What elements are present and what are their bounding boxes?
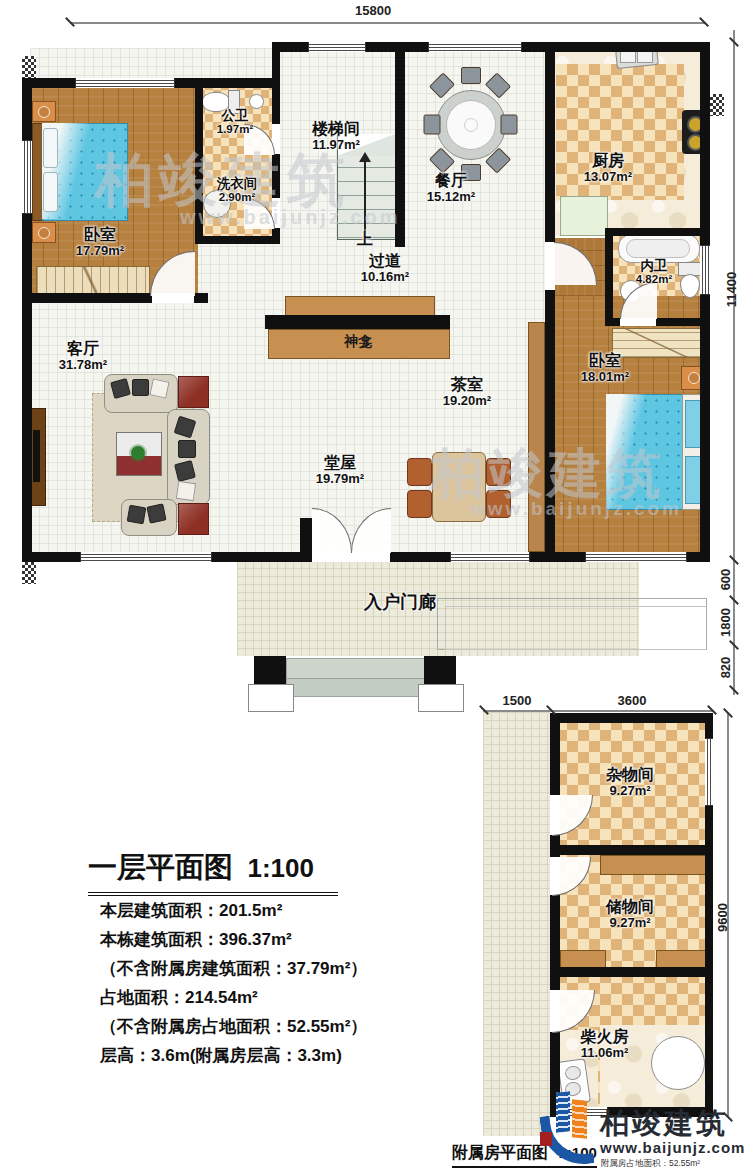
room-label-living: 客厅 31.78m² <box>28 340 138 372</box>
room-label-dining: 餐厅 15.12m² <box>403 172 499 204</box>
dining-chair <box>424 115 441 135</box>
stat-line: 本层建筑面积：201.5m² <box>100 896 460 925</box>
wall <box>605 228 613 320</box>
annex-caption-label: 附属房平面图 <box>452 1144 548 1161</box>
dim-annex-9600: 9600 <box>715 896 730 940</box>
bed1-pillow <box>43 128 58 168</box>
wall-annex <box>550 967 713 977</box>
stat-line: 层高：3.6m(附属房层高：3.3m) <box>100 1041 460 1070</box>
bathtub-inner <box>626 239 690 258</box>
dim-line-top <box>70 22 705 24</box>
title-block-header: 一层平面图 1:100 <box>88 848 338 896</box>
kitchen-sink-basin <box>620 51 636 63</box>
plan-scale: 1:100 <box>247 853 314 883</box>
dim-right-1800: 1800 <box>718 603 733 643</box>
floor-annex-walkway <box>483 712 550 1136</box>
wall-annex <box>550 713 713 723</box>
room-label-tea-room: 茶室 19.20m² <box>412 376 522 408</box>
porch-pillar <box>424 656 456 684</box>
sofa-pillow <box>178 440 196 458</box>
porch-pillar-base <box>248 684 294 712</box>
dim-line-right <box>733 30 735 695</box>
sofa-cushion <box>176 481 196 501</box>
dining-chair <box>501 115 518 135</box>
dim-right-total: 11400 <box>724 267 739 313</box>
wall <box>300 518 312 562</box>
stat-line: （不含附属房建筑面积：37.79m²） <box>100 954 460 983</box>
wall-shrine <box>265 315 450 329</box>
dim-annex-1500: 1500 <box>485 693 549 708</box>
kitchen-sink-basin <box>637 51 653 63</box>
wall <box>700 42 710 562</box>
porch-pillar <box>254 656 286 684</box>
window <box>700 245 710 295</box>
dim-top-value: 15800 <box>355 3 391 18</box>
bed2-blanket <box>606 394 666 508</box>
tv-icon <box>33 430 40 482</box>
window <box>450 552 530 562</box>
hatch-mark <box>22 562 36 584</box>
dim-annex-3600: 3600 <box>572 693 692 708</box>
window <box>428 42 522 52</box>
stairs <box>337 152 397 240</box>
sofa-cushion <box>149 378 169 398</box>
annex-footprint-note: 附属房占地面积：52.55m² <box>601 1158 700 1170</box>
logo-brand-text: 柏竣建筑 <box>600 1104 728 1144</box>
floor-plan-canvas: 柏竣建筑 www.baijunjz.com 柏竣建筑 www.baijunjz.… <box>0 0 750 1176</box>
hatch-mark <box>22 56 36 78</box>
tea-cabinet <box>528 322 545 552</box>
storage-shelf <box>600 855 708 875</box>
logo-red-block <box>540 1132 552 1146</box>
sofa-pillow <box>132 379 149 396</box>
window <box>80 552 212 562</box>
room-label-bedroom2: 卧室 18.01m² <box>550 352 660 384</box>
room-label-public-bath: 公卫 1.97m² <box>200 108 270 136</box>
stairs-arrow-line <box>364 160 366 232</box>
plan-title: 一层平面图 <box>88 851 233 883</box>
wall <box>605 228 710 236</box>
stat-line: 占地面积：214.54m² <box>100 983 460 1012</box>
round-table <box>651 1036 705 1090</box>
basin-icon <box>249 94 264 109</box>
porch-terrace-edge-inner <box>445 606 706 650</box>
logo-url-text: www.baijunjz.com <box>600 1139 745 1156</box>
stat-line: （不含附属房占地面积：52.55m²） <box>100 1012 460 1041</box>
room-label-firewood: 柴火房 11.06m² <box>552 1028 657 1060</box>
wall-annex <box>550 845 713 855</box>
logo-icon <box>540 1088 596 1164</box>
bed1-nightstand <box>32 101 56 122</box>
room-label-storage: 储物间 9.27m² <box>575 898 685 930</box>
room-label-inner-bath: 内卫 4.82m² <box>614 258 694 286</box>
room-label-laundry: 洗衣间 2.90m² <box>198 176 276 204</box>
room-label-stairwell: 楼梯间 11.97m² <box>288 120 384 152</box>
bedroom1-wardrobe <box>36 266 150 295</box>
logo-tower-orange <box>572 1099 587 1139</box>
tea-chair <box>407 490 432 518</box>
room-label-bedroom1: 卧室 17.79m² <box>40 226 160 258</box>
room-label-kitchen: 厨房 13.07m² <box>560 152 656 184</box>
dim-right-600: 600 <box>718 560 733 600</box>
stat-line: 本栋建筑面积：396.37m² <box>100 925 460 954</box>
side-table <box>178 376 209 408</box>
tea-chair <box>486 458 511 486</box>
fridge-icon <box>560 196 608 236</box>
window <box>705 738 713 806</box>
bed1-pillow <box>43 172 58 212</box>
dim-right-820: 820 <box>718 648 733 688</box>
plant-icon <box>131 446 145 460</box>
tea-chair <box>407 458 432 486</box>
wall <box>272 42 280 88</box>
sofa-pillow <box>146 503 166 523</box>
window <box>585 552 687 562</box>
dining-table-center <box>464 118 478 132</box>
wall <box>195 236 280 244</box>
door-opening <box>620 318 656 326</box>
room-label-main-hall: 堂屋 19.79m² <box>285 454 395 486</box>
dim-line-annex-top <box>483 710 713 712</box>
room-label-sundry: 杂物间 9.27m² <box>575 766 685 798</box>
tea-chair <box>486 490 511 518</box>
tea-table <box>432 452 486 522</box>
door-opening <box>312 552 390 562</box>
window <box>75 78 175 88</box>
sofa-pillow <box>127 505 147 525</box>
title-block-stats: 本层建筑面积：201.5m² 本栋建筑面积：396.37m² （不含附属房建筑面… <box>100 896 460 1070</box>
window <box>22 140 32 214</box>
porch-label: 入户门廊 <box>320 592 480 612</box>
stairs-up-label: 上 <box>345 230 385 248</box>
room-label-hallway: 过道 10.16m² <box>330 252 440 284</box>
logo-tower-blue <box>556 1091 570 1132</box>
porch-step <box>286 678 426 697</box>
porch-pillar-base <box>418 684 464 712</box>
window <box>308 42 366 52</box>
wall <box>195 78 203 244</box>
porch-step <box>286 658 426 680</box>
wall <box>545 42 555 242</box>
shrine-label: 神龛 <box>268 334 448 350</box>
side-table <box>178 503 209 535</box>
wall <box>395 42 405 247</box>
wall <box>545 290 555 552</box>
hatch-mark <box>710 94 724 116</box>
stairs-arrow-head-icon <box>359 152 371 162</box>
dining-chair <box>461 67 481 84</box>
